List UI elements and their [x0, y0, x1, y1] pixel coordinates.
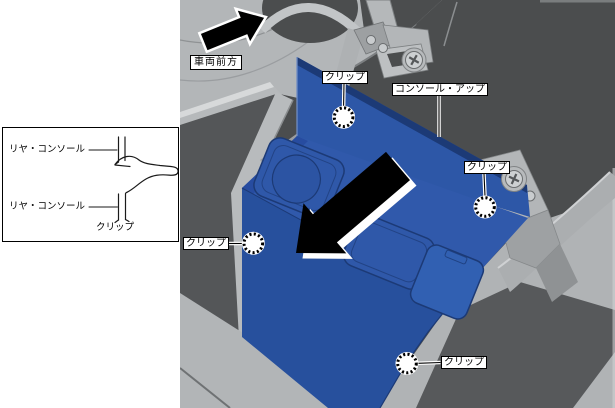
- lower-flange-section: [115, 194, 129, 223]
- clip-marker-bottom: [396, 352, 419, 375]
- top-edge-sliver: [540, 0, 615, 3]
- rear-console-label-top: リヤ・コンソール: [9, 145, 85, 155]
- console-up-callout: コンソール・アップ: [392, 83, 488, 96]
- clip-callout-top: クリップ: [322, 71, 368, 84]
- clip-callout-left: クリップ: [183, 237, 229, 250]
- console-3d-scene: [180, 0, 615, 408]
- console-removal-render: 車両前方 クリップ コンソール・アップ クリップ クリップ クリップ: [180, 0, 615, 408]
- screw-icon: [402, 48, 426, 72]
- upper-flange-section: [115, 137, 125, 165]
- clip-callout-bottom: クリップ: [441, 356, 487, 369]
- bolt-icon: [367, 36, 376, 45]
- clip-callout-right: クリップ: [464, 161, 510, 174]
- inset-leader-lines: [89, 150, 118, 207]
- clip-cross-section-inset: リヤ・コンソール リヤ・コンソール クリップ: [2, 127, 179, 242]
- clip-marker-right: [474, 196, 497, 219]
- rear-console-label-bottom: リヤ・コンソール: [9, 202, 85, 212]
- clip-marker-left: [242, 232, 265, 255]
- service-manual-figure: リヤ・コンソール リヤ・コンソール クリップ: [0, 0, 615, 408]
- clip-profile-curve: [115, 156, 178, 192]
- bolt-icon: [379, 44, 388, 53]
- vehicle-front-label: 車両前方: [190, 55, 242, 70]
- clip-label-inset: クリップ: [96, 223, 134, 233]
- clip-marker-top: [332, 106, 355, 129]
